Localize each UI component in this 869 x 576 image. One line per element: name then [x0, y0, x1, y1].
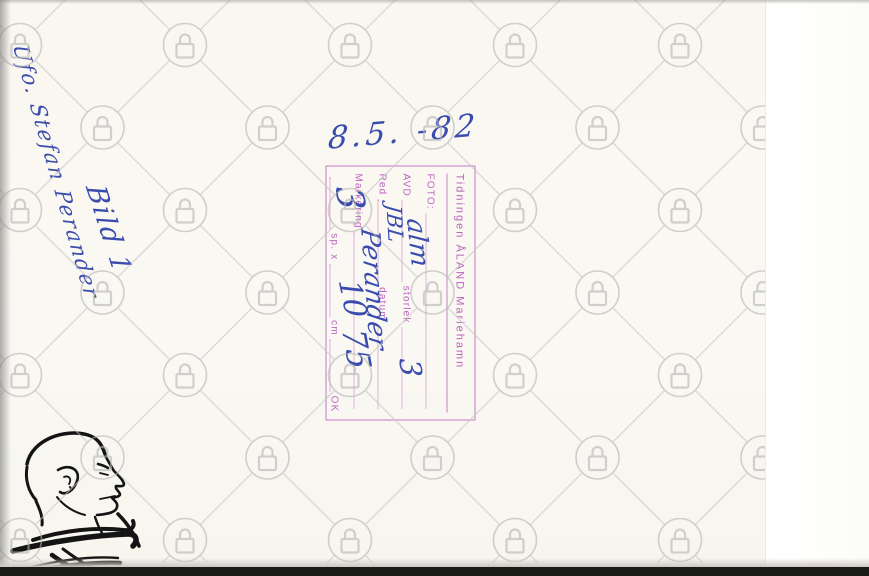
- scanned-photo-back: Ufo. Stefan Perander Bild 1 8.5. -82 Tid…: [0, 0, 869, 576]
- scan-left-edge-shadow: [0, 0, 11, 566]
- scan-right-margin: [765, 0, 869, 568]
- photo-bottom-edge: [0, 558, 869, 567]
- dotted-leader: [330, 264, 332, 316]
- stamp-label-avd: AVD: [401, 174, 412, 197]
- dotted-leader: [330, 340, 332, 392]
- stamp-header: Tidningen ÅLAND Mariehamn: [447, 174, 473, 413]
- scan-bottom-black-edge: [0, 567, 869, 576]
- stamp-label-ok: OK: [329, 396, 340, 413]
- scan-top-edge-shadow: [0, 0, 869, 4]
- stamp-label-storlek: storlek: [401, 286, 412, 324]
- stamp-entry-red: JBL: [382, 204, 405, 244]
- stamp-label-foto: FOTO:: [425, 174, 436, 210]
- dotted-leader: [354, 233, 356, 409]
- stamp-entry-extra: 75: [337, 328, 376, 369]
- archive-stamp: Tidningen ÅLAND Mariehamn FOTO: AVD stor…: [326, 166, 476, 421]
- stamp-entry-cm: 10: [332, 279, 370, 318]
- stamp-entry-columns: 3: [329, 186, 370, 210]
- stamp-label-sp: sp. x: [329, 233, 340, 260]
- stamp-label-red: Red: [377, 174, 388, 196]
- stamp-row-foto: FOTO:: [423, 174, 447, 413]
- profile-portrait-drawing: [0, 422, 158, 574]
- stamp-entry-storlek: 3: [394, 359, 426, 377]
